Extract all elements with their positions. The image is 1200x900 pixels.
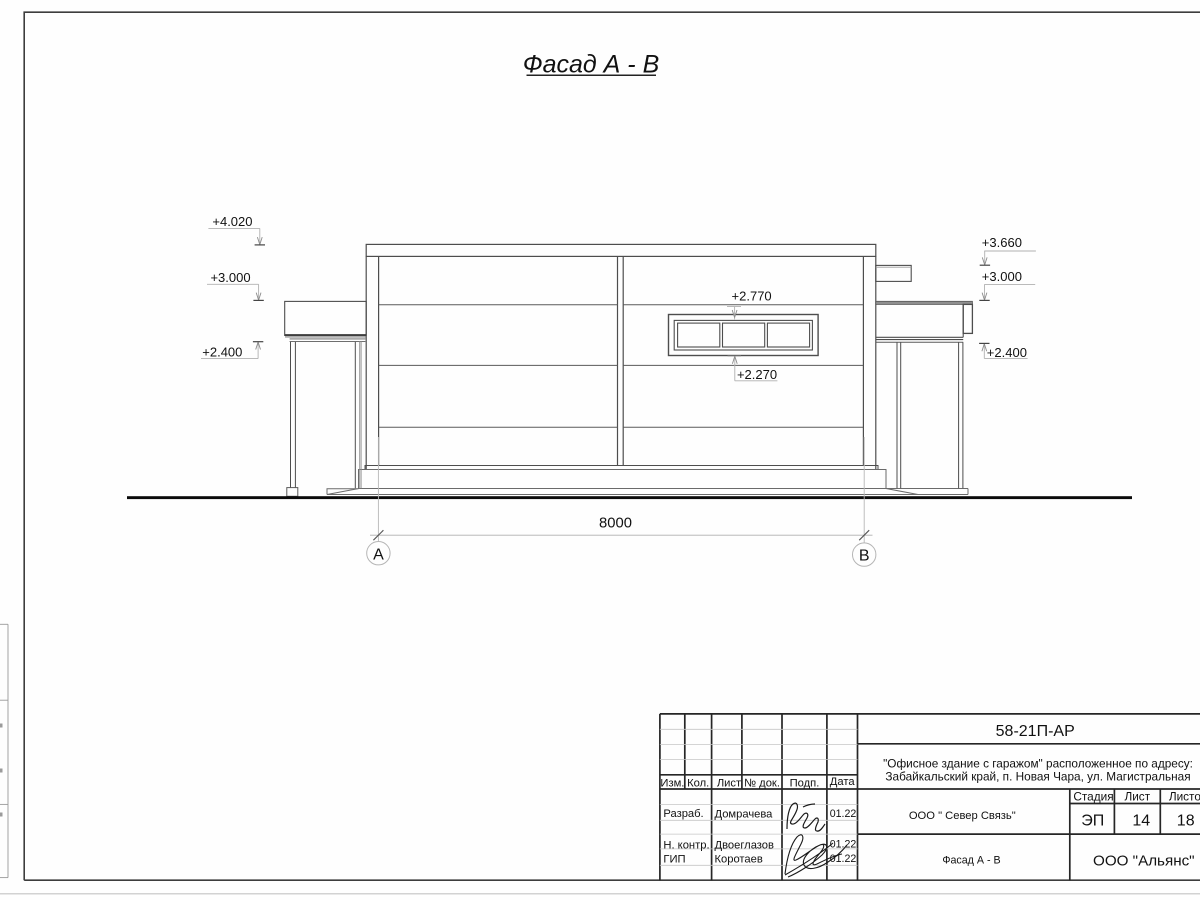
svg-text:Изм.: Изм. bbox=[660, 778, 684, 790]
svg-text:14: 14 bbox=[1132, 812, 1150, 829]
svg-text:Подп.: Подп. bbox=[790, 778, 820, 790]
svg-text:Фасад А - В: Фасад А - В bbox=[523, 51, 660, 79]
svg-text:В: В bbox=[859, 548, 870, 565]
svg-text:+4.020: +4.020 bbox=[212, 214, 252, 229]
svg-text:01.22: 01.22 bbox=[830, 808, 857, 820]
svg-text:Листов: Листов bbox=[1169, 790, 1200, 804]
svg-text:Кол.: Кол. bbox=[687, 778, 709, 790]
svg-text:18: 18 bbox=[1177, 812, 1195, 829]
svg-text:Разраб.: Разраб. bbox=[663, 808, 703, 820]
svg-text:ООО "Альянс": ООО "Альянс" bbox=[1093, 852, 1195, 869]
svg-text:А: А bbox=[373, 546, 384, 563]
svg-text:+2.770: +2.770 bbox=[732, 288, 772, 303]
svg-text:"Офисное здание с гаражом" рас: "Офисное здание с гаражом" расположенное… bbox=[883, 756, 1193, 770]
svg-text:58-21П-АР: 58-21П-АР bbox=[996, 723, 1075, 740]
svg-text:Забайкальский край, п. Новая Ч: Забайкальский край, п. Новая Чара, ул. М… bbox=[885, 769, 1190, 783]
svg-text:Дата: Дата bbox=[830, 776, 856, 788]
svg-text:+3.000: +3.000 bbox=[982, 269, 1022, 284]
svg-text:Стадия: Стадия bbox=[1073, 790, 1113, 804]
svg-text:+2.270: +2.270 bbox=[737, 367, 777, 382]
svg-text:+3.660: +3.660 bbox=[982, 235, 1022, 250]
svg-text:+2.400: +2.400 bbox=[987, 345, 1027, 360]
svg-text:Лист: Лист bbox=[717, 778, 741, 790]
svg-text:Фасад А - В: Фасад А - В bbox=[942, 855, 1000, 867]
svg-text:Домрачева: Домрачева bbox=[715, 808, 774, 820]
svg-text:Коротаев: Коротаев bbox=[715, 854, 763, 866]
svg-text:ГИП: ГИП bbox=[663, 854, 685, 866]
svg-text:ЭП: ЭП bbox=[1081, 812, 1104, 829]
svg-text:+2.400: +2.400 bbox=[202, 344, 242, 359]
svg-text:Лист: Лист bbox=[1124, 790, 1150, 804]
svg-text:+3.000: +3.000 bbox=[210, 270, 250, 285]
svg-text:Двоеглазов: Двоеглазов bbox=[715, 839, 775, 851]
svg-text:01.22: 01.22 bbox=[830, 838, 857, 850]
svg-text:8000: 8000 bbox=[599, 515, 632, 531]
svg-text:01.22: 01.22 bbox=[830, 853, 857, 865]
svg-text:ООО " Север Связь": ООО " Север Связь" bbox=[909, 810, 1016, 822]
svg-text:Н. контр.: Н. контр. bbox=[663, 839, 709, 851]
svg-text:№ док.: № док. bbox=[744, 778, 780, 790]
